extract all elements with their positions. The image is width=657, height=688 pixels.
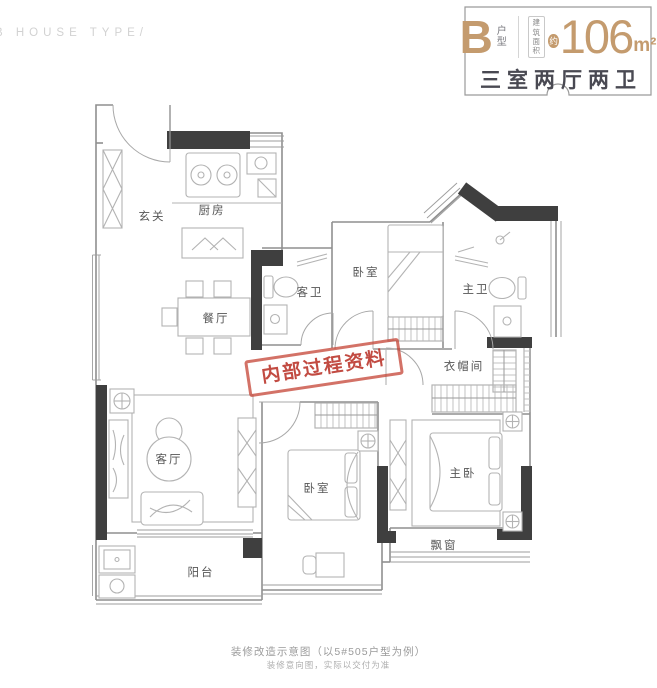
room-label-entry: 玄关 xyxy=(139,209,166,223)
footer-caption: 装修改造示意图（以5#505户型为例） xyxy=(0,644,657,659)
room-label-balcony: 阳台 xyxy=(188,565,215,579)
room-label-dining: 餐厅 xyxy=(203,311,230,325)
room-label-master-bedroom: 主卧 xyxy=(450,467,477,480)
balcony-fixtures xyxy=(99,546,135,598)
structural-shaft xyxy=(103,150,122,228)
bedroom-bottom-furniture xyxy=(288,403,378,577)
living-furniture xyxy=(109,389,256,525)
kitchen-fixtures xyxy=(172,153,282,258)
room-label-bedroom-bottom: 卧室 xyxy=(304,481,331,495)
room-label-bay-window: 飘窗 xyxy=(431,538,458,552)
bedroom-top-furniture xyxy=(388,225,443,341)
cloakroom-wardrobes xyxy=(432,350,516,412)
room-label-cloakroom: 衣帽间 xyxy=(444,359,485,373)
room-label-master-bath: 主卫 xyxy=(463,283,490,296)
room-label-kitchen: 厨房 xyxy=(199,204,226,217)
room-label-guest-bath: 客卫 xyxy=(297,285,324,299)
room-label-bedroom-top: 卧室 xyxy=(353,265,380,279)
floorplan-page: B HOUSE TYPE/ B 户 型 建筑 面积 约 106 m² xyxy=(0,0,657,688)
room-label-living: 客厅 xyxy=(156,452,183,466)
floorplan-drawing: 玄关 厨房 餐厅 客卫 卧室 主卫 衣帽间 客厅 卧室 主卧 飘窗 阳台 xyxy=(0,0,657,688)
footer-note: 装修意向图，实际以交付为准 xyxy=(0,659,657,671)
